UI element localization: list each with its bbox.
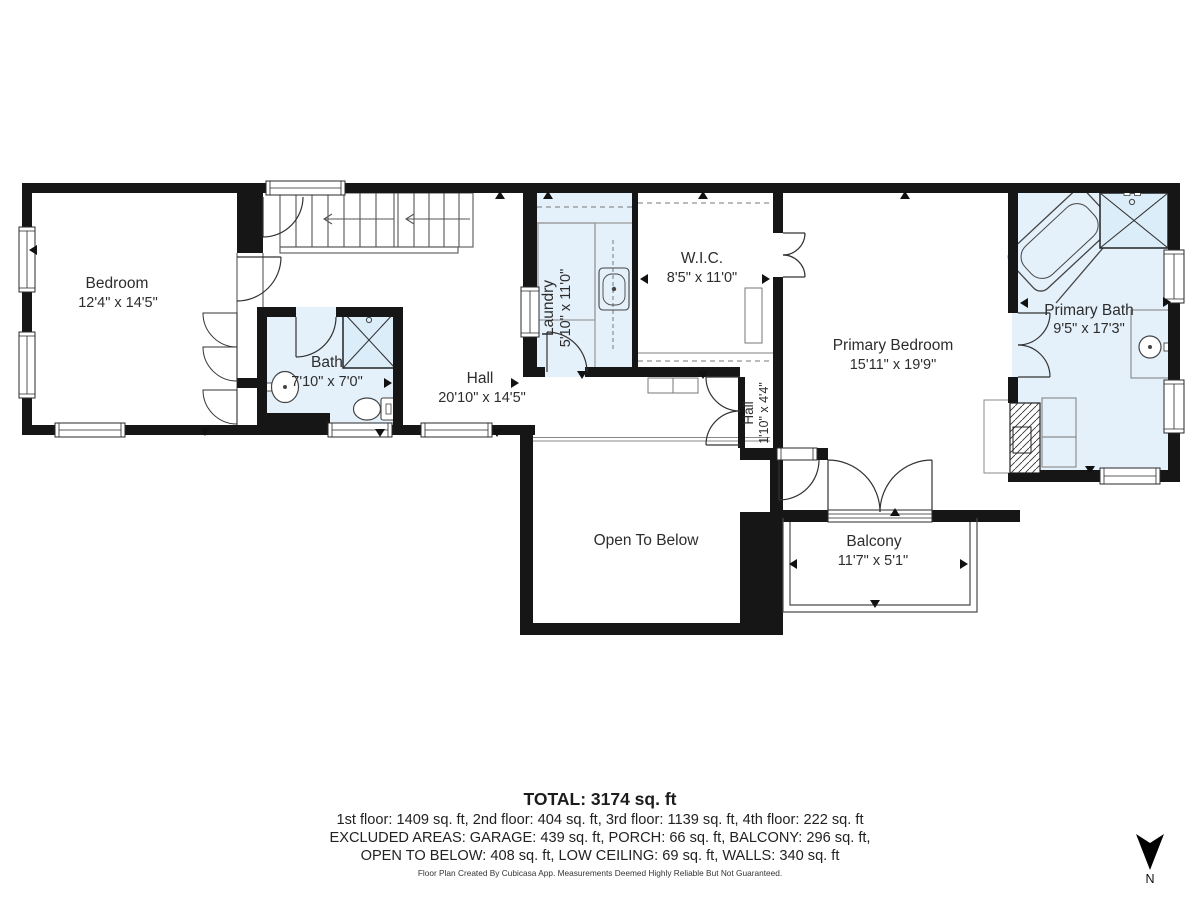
room-label-hall-small: Hall: [741, 401, 756, 424]
room-label-balcony: Balcony: [846, 533, 901, 550]
room-label-wic: W.I.C.: [681, 250, 723, 267]
room-dims-bath: 7'10" x 7'0": [291, 374, 362, 390]
area-summary: TOTAL: 3174 sq. ft 1st floor: 1409 sq. f…: [330, 789, 871, 878]
north-label: N: [1145, 872, 1154, 886]
double-door-arc: [783, 233, 805, 277]
fireplace-box: [984, 400, 1010, 473]
door-threshold: [777, 448, 817, 460]
double-door-arc: [706, 377, 740, 445]
wic-dresser: [745, 288, 762, 343]
french-door-arc: [828, 460, 932, 512]
window: [421, 423, 492, 437]
shower-icon: [1100, 190, 1168, 249]
chimney-hatch: [1010, 403, 1040, 473]
room-dims-wic: 8'5" x 11'0": [667, 270, 737, 286]
room-dims-laundry: 5'10" x 11'0": [558, 269, 574, 347]
room-dims-hall-small: 1'10" x 4'4": [757, 382, 771, 444]
room-dims-primary-bedroom: 15'11" x 19'9": [850, 357, 937, 373]
stairs-direction-arrow: [324, 214, 394, 224]
door-arc: [237, 257, 281, 301]
hall-cabinet: [648, 378, 698, 393]
door-arc: [779, 460, 819, 500]
window: [1100, 468, 1160, 484]
window: [1164, 250, 1184, 303]
total-area-text: TOTAL: 3174 sq. ft: [524, 789, 677, 809]
window: [1164, 380, 1184, 433]
room-dims-bedroom: 12'4" x 14'5": [78, 295, 158, 311]
shower-icon: [343, 309, 395, 369]
window: [521, 287, 539, 337]
floor-areas-text: 1st floor: 1409 sq. ft, 2nd floor: 404 s…: [336, 812, 863, 828]
room-dims-primary-bath: 9'5" x 17'3": [1053, 321, 1124, 337]
disclaimer-text: Floor Plan Created By Cubicasa App. Meas…: [418, 868, 782, 878]
stairs-direction-arrow: [406, 214, 470, 224]
excluded-areas-text-2: OPEN TO BELOW: 408 sq. ft, LOW CEILING: …: [361, 848, 840, 864]
stairs: [280, 193, 473, 253]
window: [19, 227, 35, 292]
closet-door-fans: [203, 313, 237, 424]
north-arrow-icon: N: [1136, 834, 1164, 886]
room-label-bath: Bath: [311, 354, 343, 371]
room-label-open-to-below: Open To Below: [594, 532, 700, 549]
room-label-hall: Hall: [467, 370, 494, 387]
room-label-primary-bedroom: Primary Bedroom: [833, 337, 954, 354]
window: [19, 332, 35, 398]
room-label-bedroom: Bedroom: [86, 275, 149, 292]
door-arc: [263, 197, 303, 237]
window: [266, 181, 345, 195]
room-label-primary-bath: Primary Bath: [1044, 302, 1134, 319]
floor-plan-page: Bedroom 12'4" x 14'5" Bath 7'10" x 7'0" …: [0, 0, 1200, 900]
floor-plan: Bedroom 12'4" x 14'5" Bath 7'10" x 7'0" …: [0, 0, 1200, 900]
window: [55, 423, 125, 437]
room-label-laundry: Laundry: [540, 280, 557, 336]
room-dims-hall: 20'10" x 14'5": [438, 390, 526, 406]
excluded-areas-text: EXCLUDED AREAS: GARAGE: 439 sq. ft, PORC…: [330, 830, 871, 846]
toilet-icon: [354, 398, 397, 420]
room-dims-balcony: 11'7" x 5'1": [838, 553, 908, 569]
